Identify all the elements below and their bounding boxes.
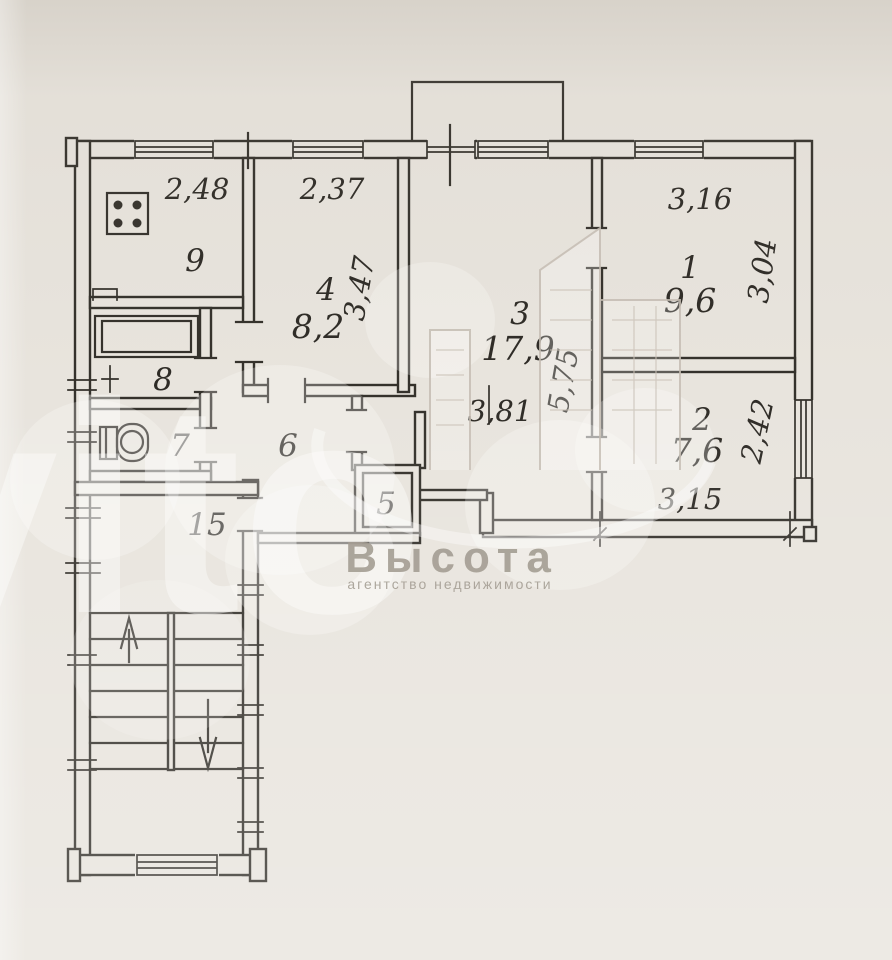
room-9-number: 9 (185, 243, 205, 279)
window (793, 400, 814, 478)
floor-plan-screenshot: 9 4 8,2 3 17,9 1 9,6 2 7,6 5 6 7 8 15 2,… (0, 0, 892, 960)
stove-icon (107, 193, 148, 234)
balcony-door (427, 125, 475, 185)
window (134, 139, 214, 160)
dim-room3-width: 3,81 (468, 394, 533, 428)
window (477, 139, 549, 160)
room-3-number: 3 (510, 296, 530, 332)
agency-name: Высота (345, 533, 559, 582)
dim-kitchen-width: 2,48 (164, 172, 230, 206)
dim-room1-width: 3,16 (668, 182, 733, 216)
dim-room1-depth: 3,04 (741, 236, 784, 305)
dim-room2-depth: 2,42 (734, 396, 781, 467)
dim-room4-width: 2,37 (299, 172, 365, 206)
window (634, 139, 704, 160)
window (135, 853, 219, 877)
window (292, 139, 364, 160)
room-4-number: 4 (315, 272, 336, 308)
agency-subtitle: агентство недвижимости (347, 576, 552, 592)
floor-plan-drawing: 9 4 8,2 3 17,9 1 9,6 2 7,6 5 6 7 8 15 2,… (0, 0, 892, 960)
balcony-outline (412, 82, 563, 141)
